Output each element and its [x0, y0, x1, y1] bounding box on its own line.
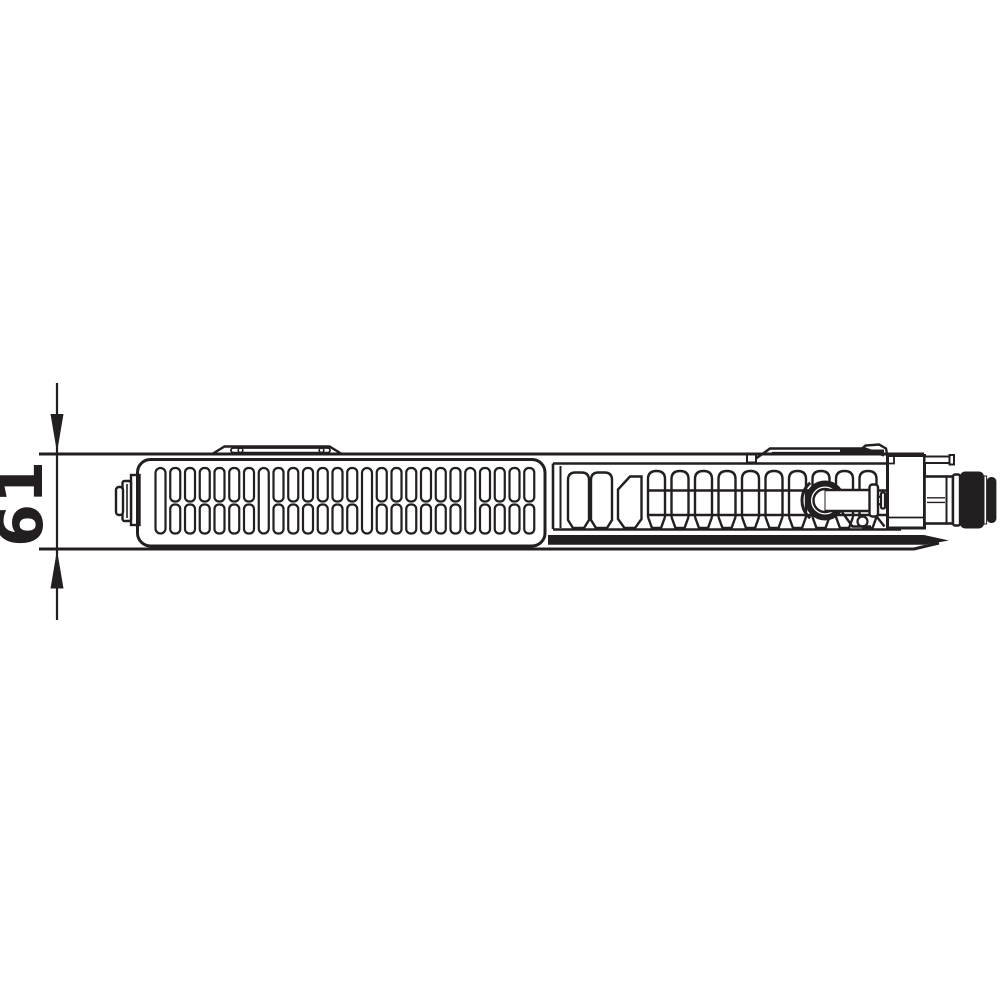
- protection-cap-end: [987, 477, 997, 523]
- grille-slot: [244, 468, 254, 502]
- dimension-arrow-bottom: [51, 550, 64, 589]
- grille-slots: [156, 468, 535, 534]
- grille-slot: [347, 468, 357, 502]
- grille-slot: [333, 505, 343, 534]
- grille-slot: [274, 468, 284, 502]
- grille-slot: [495, 468, 505, 502]
- valve-bolt-icon: [858, 517, 868, 527]
- grille-slot: [156, 468, 166, 534]
- convector-fin: [618, 477, 642, 529]
- grille-slot: [200, 505, 210, 534]
- fin-channel: [766, 471, 783, 528]
- clip-rivet-icon: [238, 448, 243, 453]
- grille-slot: [318, 505, 328, 534]
- fin-channel: [648, 471, 665, 528]
- grille-slot: [200, 468, 210, 502]
- grille-slot: [170, 505, 180, 534]
- air-vent-pin: [925, 457, 951, 464]
- grille-slot: [406, 468, 416, 502]
- grille-slot: [510, 468, 520, 502]
- grille-slot: [185, 505, 195, 534]
- clip-rivet-icon: [319, 448, 324, 453]
- grille-slot: [229, 468, 239, 502]
- left-mounting-clip: [213, 447, 341, 454]
- grille-slot: [303, 468, 313, 502]
- grille-slot: [274, 505, 284, 534]
- grille-slot: [215, 505, 225, 534]
- dimension-annotation: 61: [0, 383, 64, 620]
- grille-slot: [451, 468, 461, 502]
- grille-slot: [377, 468, 387, 502]
- drawing-canvas: 61: [0, 0, 1000, 1000]
- left-plug-fitting: [116, 475, 140, 525]
- grille-slot: [303, 505, 313, 534]
- fin-channel: [695, 471, 712, 528]
- threaded-connection: [925, 477, 954, 524]
- grille-slot: [185, 468, 195, 502]
- grille-slot: [229, 505, 239, 534]
- grille-slot: [480, 468, 490, 502]
- grille-slot: [524, 505, 534, 534]
- grille-slot: [347, 505, 357, 534]
- protection-cap: [960, 472, 984, 529]
- grille-slot: [333, 468, 343, 502]
- bottom-rail: [548, 535, 949, 545]
- fin-channel: [672, 471, 689, 528]
- grille-slot: [495, 505, 505, 534]
- grille-slot: [421, 468, 431, 502]
- grille-slot: [421, 505, 431, 534]
- grille-slot: [436, 505, 446, 534]
- grille-slot: [377, 505, 387, 534]
- grille-slot: [170, 468, 180, 502]
- grille-slot: [480, 505, 490, 534]
- grille-slot: [406, 505, 416, 534]
- grille-slot: [465, 468, 475, 534]
- convector-fin: [591, 473, 612, 529]
- grille-slot: [288, 505, 298, 534]
- grille-slot: [524, 468, 534, 502]
- grille-slot: [436, 468, 446, 502]
- grille-slot: [510, 505, 520, 534]
- radiator-technical-drawing: 61: [0, 0, 1000, 1000]
- grille-slot: [451, 505, 461, 534]
- convector-fin: [568, 473, 589, 529]
- connection-block: [888, 455, 997, 529]
- grille-slot: [318, 468, 328, 502]
- grille-slot: [288, 468, 298, 502]
- fin-channel: [742, 471, 759, 528]
- grille-slot: [215, 468, 225, 502]
- grille-slot: [244, 505, 254, 534]
- valve-flange: [870, 485, 879, 517]
- grille-slot: [362, 468, 372, 534]
- dimension-label: 61: [0, 461, 57, 547]
- valve-assembly: [802, 483, 891, 527]
- grille-slot: [392, 505, 402, 534]
- fin-channel: [719, 471, 736, 528]
- dimension-arrow-top: [51, 414, 64, 453]
- grille-slot: [259, 468, 269, 534]
- grille-slot: [392, 468, 402, 502]
